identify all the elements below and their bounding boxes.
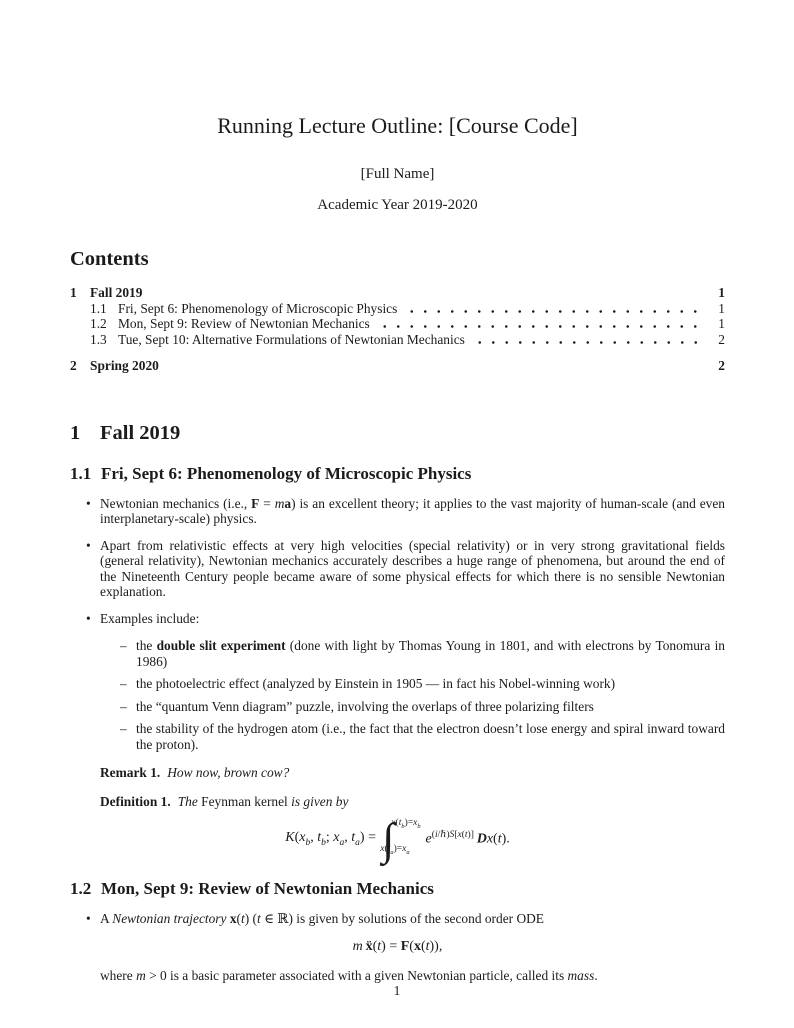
document-title: Running Lecture Outline: [Course Code]: [70, 112, 725, 139]
sub-bullet-item: the stability of the hydrogen atom (i.e.…: [136, 721, 725, 752]
section-heading-fall-2019: 1 Fall 2019: [70, 421, 725, 446]
formula-integrand: e(i/ℏ)S[x(t)] Dx(t).: [426, 829, 510, 848]
section-number: 1: [70, 421, 100, 446]
toc-entry-1-3: 1.3 Tue, Sept 10: Alternative Formulatio…: [70, 332, 725, 348]
remark-1: Remark 1.How now, brown cow?: [100, 765, 725, 781]
subsection-heading-1-1: 1.1 Fri, Sept 6: Phenomenology of Micros…: [70, 463, 725, 484]
toc-entry-1-1: 1.1 Fri, Sept 6: Phenomenology of Micros…: [70, 301, 725, 317]
document-page: Running Lecture Outline: [Course Code] […: [0, 0, 794, 1028]
remark-label: Remark 1.: [100, 765, 160, 780]
page-number: 1: [0, 983, 794, 999]
bullet-item: Examples include:: [100, 611, 725, 627]
feynman-kernel-formula: K(xb, tb; xa, ta) = ∫ x(tb)=xb x(ta)=xa …: [70, 813, 725, 863]
bullet-item: Newtonian mechanics (i.e., F = ma) is an…: [100, 496, 725, 527]
table-of-contents: 1 Fall 2019 1 1.1 Fri, Sept 6: Phenomeno…: [70, 285, 725, 374]
toc-entry-number: 1.3: [90, 332, 118, 348]
definition-label: Definition 1.: [100, 794, 171, 809]
subsection-number: 1.1: [70, 463, 101, 484]
definition-body: The Feynman kernel is given by: [178, 794, 349, 809]
bullet-item: A Newtonian trajectory x(t) (t ∈ ℝ) is g…: [100, 911, 725, 927]
toc-dotted-leader: [471, 332, 705, 348]
definition-1: Definition 1.The Feynman kernel is given…: [100, 794, 725, 810]
subsection-title: Mon, Sept 9: Review of Newtonian Mechani…: [101, 878, 434, 899]
toc-entry-number: 1.2: [90, 316, 118, 332]
toc-dotted-leader: [403, 301, 705, 317]
formula-lhs: K(xb, tb; xa, ta) =: [285, 830, 376, 848]
sub-bullet-item: the double slit experiment (done with li…: [136, 638, 725, 669]
contents-heading: Contents: [70, 247, 725, 272]
document-author: [Full Name]: [70, 165, 725, 183]
toc-entry-page: 1: [711, 301, 725, 317]
bullet-list: A Newtonian trajectory x(t) (t ∈ ℝ) is g…: [70, 911, 725, 927]
toc-entry-label: Mon, Sept 9: Review of Newtonian Mechani…: [118, 316, 370, 332]
toc-entry-number: 1: [70, 285, 90, 301]
subsection-heading-1-2: 1.2 Mon, Sept 9: Review of Newtonian Mec…: [70, 878, 725, 899]
integral-upper-limit: x(tb)=xb: [391, 818, 420, 832]
toc-entry-number: 1.1: [90, 301, 118, 317]
toc-entry-number: 2: [70, 358, 90, 374]
toc-entry-page: 2: [711, 332, 725, 348]
remark-body: How now, brown cow?: [167, 765, 289, 780]
continuation-paragraph: where m > 0 is a basic parameter associa…: [100, 968, 725, 984]
section-title: Fall 2019: [100, 421, 180, 446]
document-date: Academic Year 2019-2020: [70, 196, 725, 214]
toc-entry-1-2: 1.2 Mon, Sept 9: Review of Newtonian Mec…: [70, 316, 725, 332]
toc-entry-label: Fall 2019: [90, 285, 142, 301]
toc-entry-label: Spring 2020: [90, 358, 159, 374]
sub-bullet-list: the double slit experiment (done with li…: [70, 638, 725, 752]
newton-ode-formula: m ẍ(t) = F(x(t)),: [70, 939, 725, 955]
bullet-item: Apart from relativistic effects at very …: [100, 538, 725, 600]
toc-entry-page: 1: [711, 316, 725, 332]
toc-dotted-leader: [376, 316, 705, 332]
toc-entry-label: Fri, Sept 6: Phenomenology of Microscopi…: [118, 301, 397, 317]
toc-entry-label: Tue, Sept 10: Alternative Formulations o…: [118, 332, 465, 348]
subsection-number: 1.2: [70, 878, 101, 899]
toc-entry-spring-2020: 2 Spring 2020 2: [70, 358, 725, 374]
sub-bullet-item: the photoelectric effect (analyzed by Ei…: [136, 676, 725, 692]
bullet-list: Newtonian mechanics (i.e., F = ma) is an…: [70, 496, 725, 753]
toc-entry-page: 1: [711, 285, 725, 301]
toc-entry-page: 2: [711, 358, 725, 374]
sub-bullet-item: the “quantum Venn diagram” puzzle, invol…: [136, 699, 725, 715]
integral-sign: ∫ x(tb)=xb x(ta)=xa: [382, 816, 421, 861]
toc-entry-fall-2019: 1 Fall 2019 1: [70, 285, 725, 301]
subsection-title: Fri, Sept 6: Phenomenology of Microscopi…: [101, 463, 471, 484]
